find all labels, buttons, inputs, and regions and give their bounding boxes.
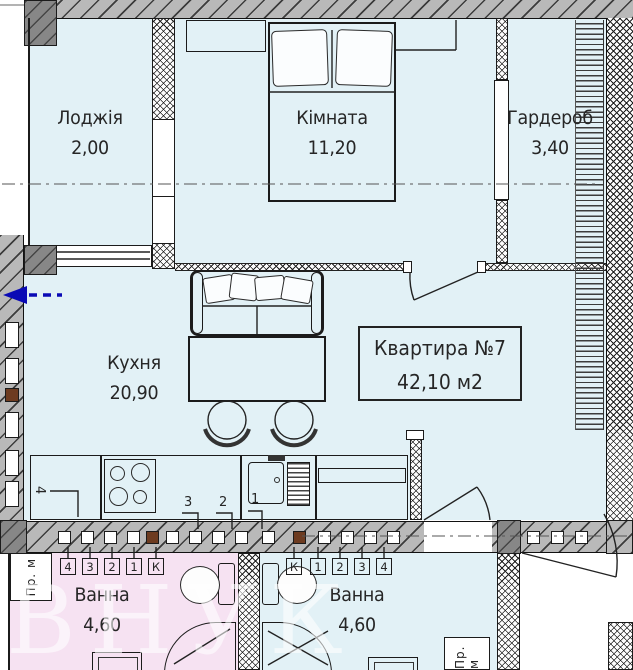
door-swing-bathroom [424,487,490,520]
bed-detail-lines [269,30,395,92]
riser-leaders-left [68,547,156,558]
stool [275,401,313,439]
floor-plan: Лоджія 2,00 Кімната 11,20 Гардероб 3,40 … [0,0,633,670]
entry-arrow-icon [3,286,27,304]
riser-leaders-right [294,547,384,558]
counter-tag-leader [50,491,78,517]
bedroom-corner-lines [396,20,456,50]
watermark-text: ВНУК [6,566,357,670]
sofa-detail-lines [202,306,312,334]
door-swing-entrance [522,514,617,577]
stool [208,401,246,439]
window-mullions [57,252,150,259]
door-swing-bedroom [410,272,478,300]
counter-tag-leaders [182,511,262,529]
